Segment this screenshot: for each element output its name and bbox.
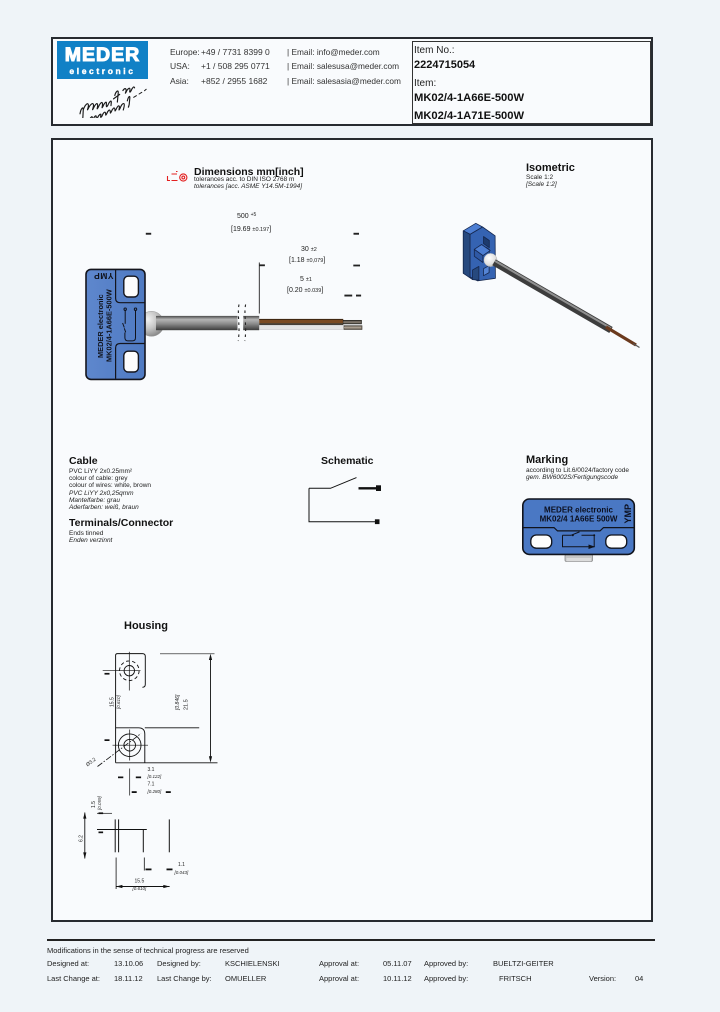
svg-text:3.1: 3.1 (148, 767, 155, 773)
svg-text:5 ±1: 5 ±1 (300, 276, 312, 283)
svg-text:MK02/4 1A66E 500W: MK02/4 1A66E 500W (540, 514, 618, 523)
svg-text:MK02/4-1A66E-500W: MK02/4-1A66E-500W (105, 289, 114, 362)
svg-text:500 +5: 500 +5 (237, 212, 257, 220)
svg-text:YMP: YMP (94, 271, 114, 281)
svg-text:21.5: 21.5 (184, 699, 190, 710)
svg-text:MEDER electronic: MEDER electronic (544, 506, 613, 515)
svg-text:[1.18 ±0,079]: [1.18 ±0,079] (289, 257, 325, 264)
svg-text:[0.280]: [0.280] (147, 789, 163, 794)
svg-text:6.2: 6.2 (79, 835, 85, 842)
svg-text:1.1: 1.1 (178, 862, 185, 868)
svg-text:YMP: YMP (623, 504, 633, 524)
svg-text:[0.122]: [0.122] (147, 774, 163, 779)
svg-text:15.5: 15.5 (110, 697, 116, 707)
svg-text:Ø3.2: Ø3.2 (85, 757, 97, 768)
svg-text:[19.69 ±0.197]: [19.69 ±0.197] (231, 226, 271, 233)
svg-text:15.5: 15.5 (135, 879, 145, 885)
svg-text:[0.20 ±0.039]: [0.20 ±0.039] (287, 287, 323, 294)
svg-text:[0.610]: [0.610] (116, 694, 121, 710)
svg-text:[0.846]: [0.846] (175, 694, 181, 711)
svg-text:[0.610]: [0.610] (132, 886, 148, 891)
svg-text:[0.043]: [0.043] (174, 870, 190, 875)
svg-text:[0.059]: [0.059] (97, 795, 102, 811)
svg-text:30 ±2: 30 ±2 (301, 246, 317, 253)
svg-text:7.1: 7.1 (148, 782, 155, 788)
